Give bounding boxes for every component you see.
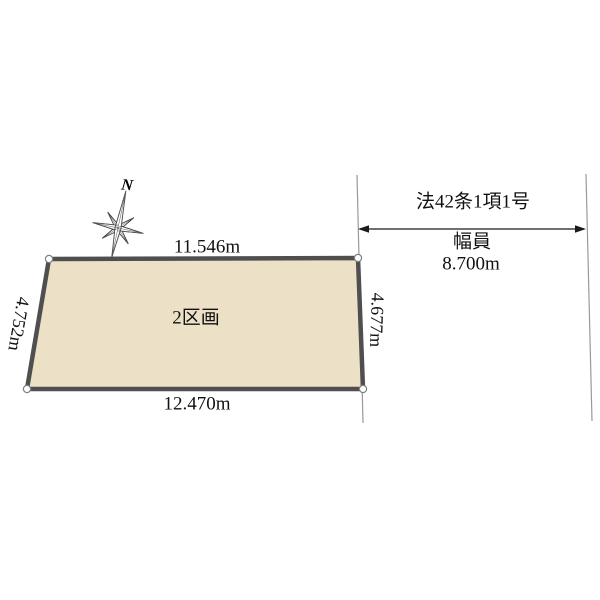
- compass-star-icon: [86, 185, 151, 262]
- dimension-bottom-label: 12.470m: [163, 395, 230, 414]
- road-width-label: 幅員: [453, 233, 491, 252]
- dimension-right-label: 4.677m: [367, 292, 387, 347]
- plot-name-label: 2区画: [172, 309, 220, 328]
- compass-north-label: N: [120, 176, 133, 195]
- land-plot-diagram: N 2区画 11.546m 12.470m 4.752m 4.677m 法42条…: [0, 0, 600, 600]
- corner-marker-bottom-right: [359, 385, 366, 392]
- corner-marker-bottom-left: [23, 385, 30, 392]
- road-width-value: 8.700m: [442, 255, 500, 274]
- arrowhead-left-icon: [358, 225, 369, 233]
- corner-marker-top-right: [354, 254, 361, 261]
- arrowhead-right-icon: [575, 225, 586, 233]
- corner-marker-top-left: [45, 255, 52, 262]
- road-law-label: 法42条1項1号: [416, 193, 530, 212]
- diagram-drawing: [0, 0, 600, 600]
- road-edge-line-right: [586, 174, 592, 421]
- dimension-top-label: 11.546m: [174, 238, 240, 257]
